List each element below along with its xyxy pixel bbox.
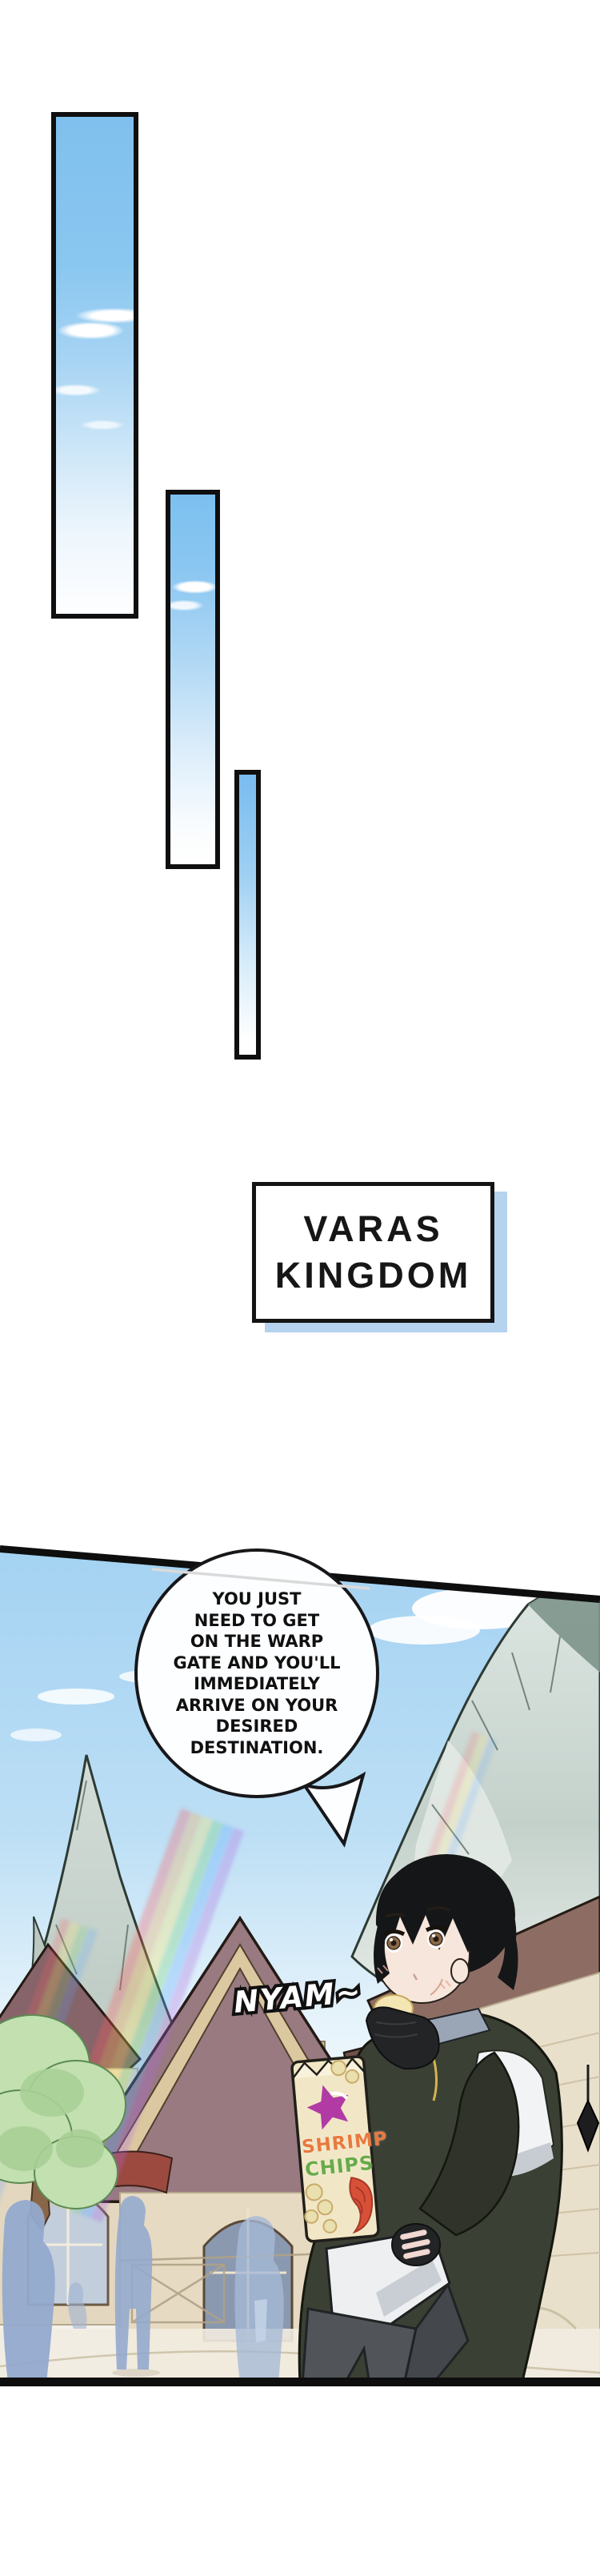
webtoon-page: VARAS KINGDOM bbox=[0, 0, 600, 2576]
bubble-line: IMMEDIATELY bbox=[138, 1673, 376, 1695]
sky-panel-1 bbox=[51, 112, 138, 619]
bubble-line: DESIRED bbox=[138, 1716, 376, 1737]
sky-panel-3 bbox=[234, 770, 261, 1060]
caption-line-2: KINGDOM bbox=[256, 1252, 490, 1299]
bubble-line: DESTINATION. bbox=[138, 1737, 376, 1759]
bubble-line: ARRIVE ON YOUR bbox=[138, 1695, 376, 1717]
sky-panel-2 bbox=[166, 490, 220, 869]
caption-line-1: VARAS bbox=[256, 1206, 490, 1252]
location-caption-box: VARAS KINGDOM bbox=[252, 1182, 494, 1323]
bubble-line: NEED TO GET bbox=[138, 1610, 376, 1632]
bubble-line: GATE AND YOU'LL bbox=[138, 1653, 376, 1674]
panel-bottom-border bbox=[0, 2378, 600, 2386]
bubble-line: YOU JUST bbox=[138, 1588, 376, 1610]
bubble-line: ON THE WARP bbox=[138, 1631, 376, 1653]
speech-bubble: YOU JUST NEED TO GET ON THE WARP GATE AN… bbox=[134, 1548, 379, 1798]
